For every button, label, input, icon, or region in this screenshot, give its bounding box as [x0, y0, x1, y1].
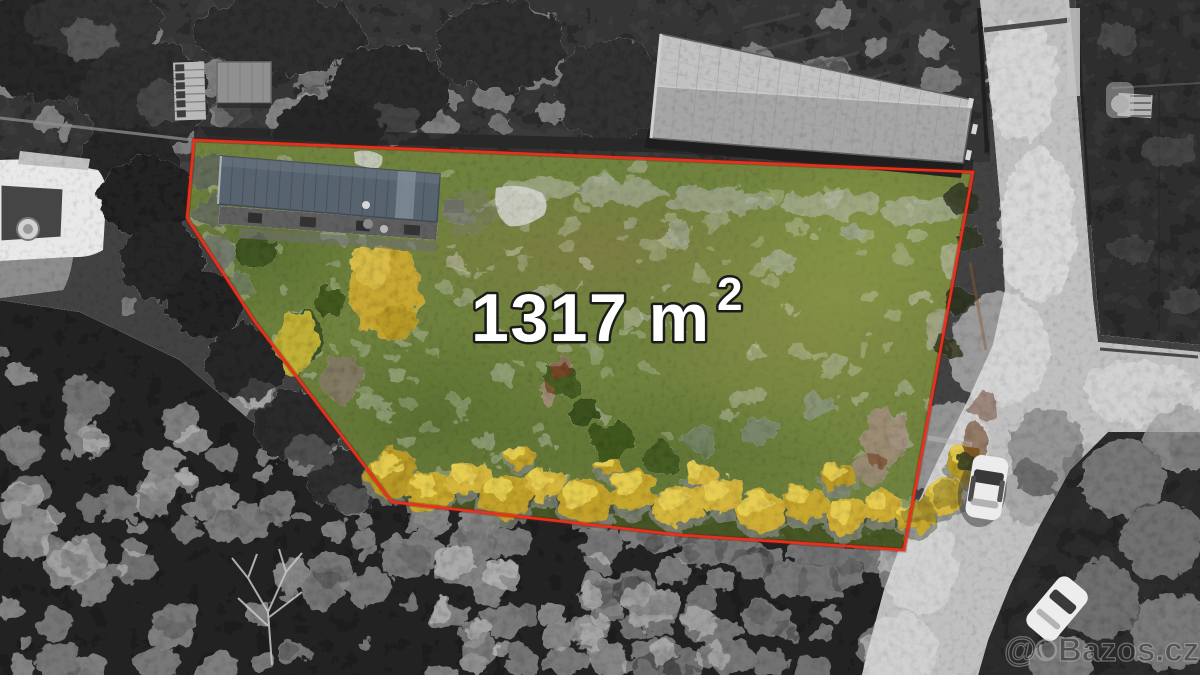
svg-text:1317 m: 1317 m	[471, 280, 711, 356]
svg-text:2: 2	[717, 268, 743, 320]
svg-text:@: @	[1004, 631, 1037, 669]
svg-text:Bazos.cz: Bazos.cz	[1058, 631, 1199, 668]
